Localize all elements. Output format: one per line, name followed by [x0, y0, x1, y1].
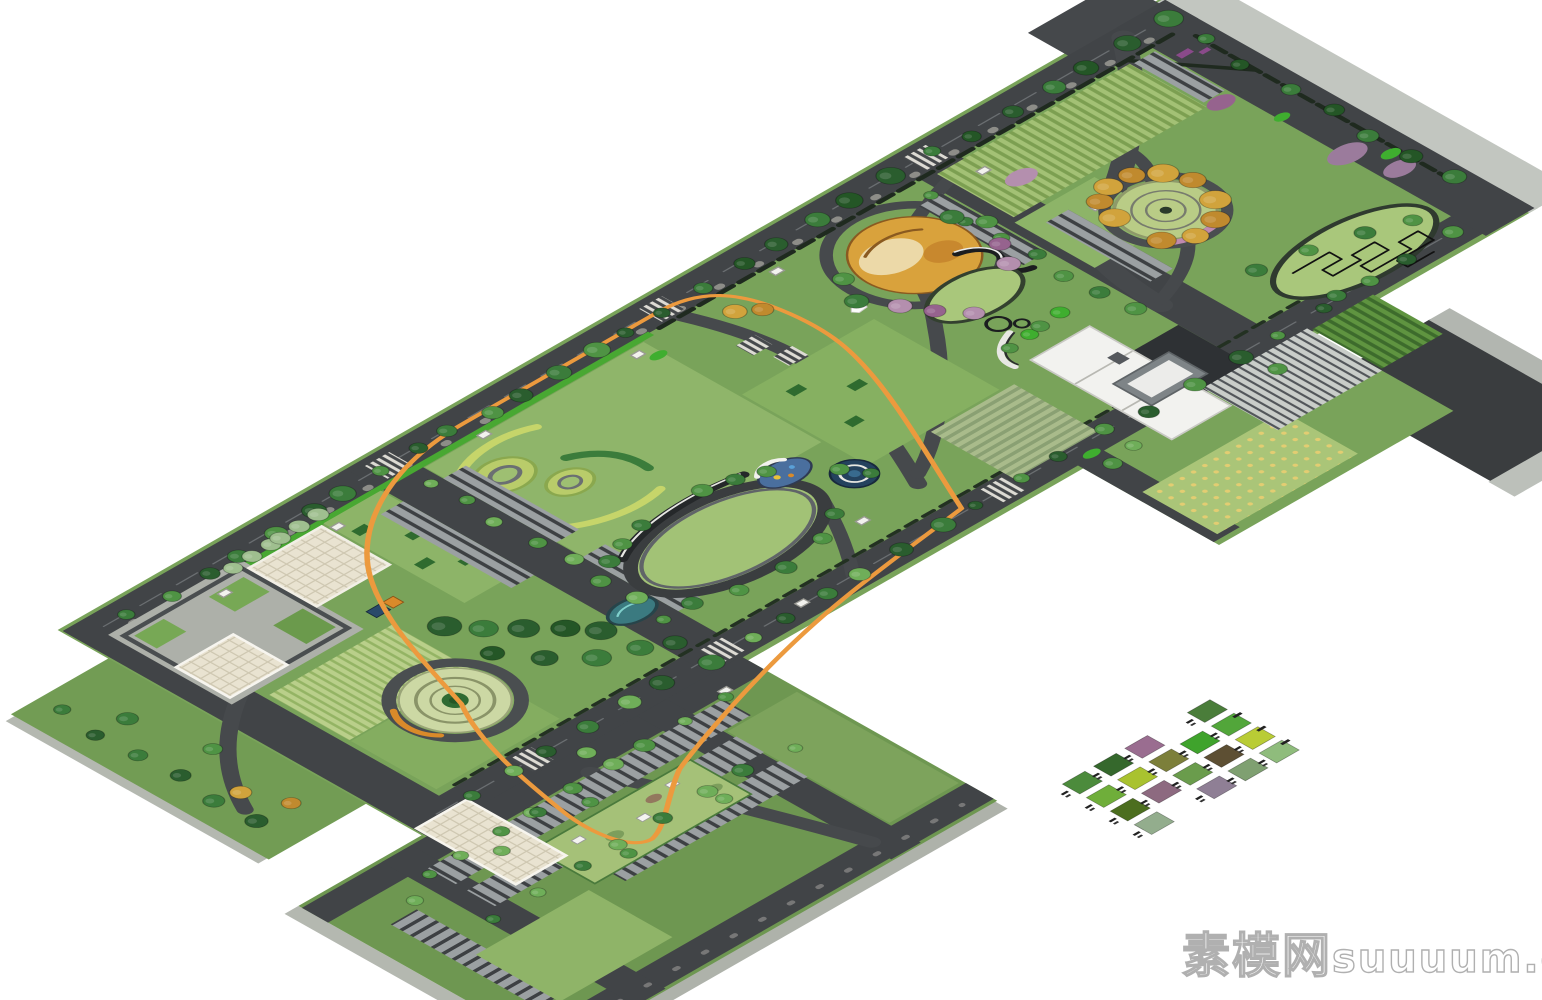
legend-label-mark — [1061, 791, 1069, 796]
legend-label-mark — [1109, 818, 1117, 823]
legend-label-mark — [1123, 755, 1131, 760]
legend-label-mark — [1116, 786, 1124, 791]
legend-label-mark — [1258, 760, 1266, 765]
legend-label-mark — [1147, 768, 1155, 773]
watermark: 素模网suuuum.com — [1182, 928, 1542, 984]
legend-swatch — [1187, 700, 1227, 723]
plant-legend — [1053, 697, 1303, 840]
legend-label-mark — [1133, 831, 1141, 836]
legend-label-mark — [1171, 782, 1179, 787]
watermark-cn: 素模网 — [1182, 928, 1332, 984]
legend-swatch — [1125, 735, 1165, 758]
legend-label-mark — [1234, 746, 1242, 751]
legend-label-mark — [1195, 795, 1203, 800]
site-plan-rendering: 素模网suuuum.com — [0, 0, 1542, 1000]
legend-label-mark — [1065, 794, 1071, 798]
legend-label-mark — [1186, 719, 1194, 724]
legend-swatch — [1134, 812, 1174, 835]
legend-label-mark — [1210, 733, 1218, 738]
legend-swatch — [1235, 727, 1275, 750]
legend-swatch — [1259, 740, 1299, 763]
legend-label-mark — [1199, 799, 1205, 803]
legend-label-mark — [1178, 750, 1186, 755]
screenshot-root: 素模网suuuum.com — [0, 0, 1542, 1000]
legend-label-mark — [1202, 764, 1210, 769]
legend-swatch — [1211, 713, 1251, 736]
legend-label-mark — [1113, 821, 1119, 825]
legend-label-mark — [1137, 835, 1143, 839]
legend-label-mark — [1140, 800, 1148, 805]
legend-label-mark — [1085, 804, 1093, 809]
legend-label-mark — [1089, 808, 1095, 812]
legend-label-mark — [1226, 777, 1234, 782]
park-site-group — [0, 0, 1542, 1000]
watermark-en: suuuum.com — [1332, 936, 1542, 982]
legend-label-mark — [1190, 722, 1196, 726]
legend-label-mark — [1092, 773, 1100, 778]
